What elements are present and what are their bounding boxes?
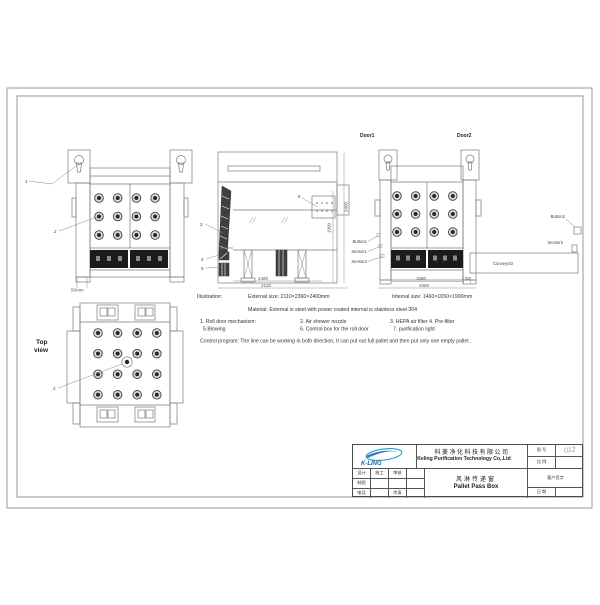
drawing-canvas: 50mm 1 2 6 [0, 0, 600, 600]
company-cell: 科菱净化科技有限公司 Keling Purification Technolog… [417, 445, 528, 469]
front-view-left: 50mm 1 2 [25, 150, 192, 293]
logo-cell: K-LING [353, 445, 417, 469]
note-material: Material: External is steel with power c… [248, 307, 417, 313]
callout-2-mid: 2 [200, 222, 203, 227]
door1-label: Door1 [360, 133, 375, 139]
sensor2-right-label: Sensor2 [547, 240, 563, 245]
construction-label: 施工 [371, 469, 389, 479]
note-item-7: 7. purification light [393, 327, 435, 333]
drawing-no-text: 012 [563, 446, 576, 455]
drawing-no-value: 012 [556, 445, 583, 457]
sensor1-label: Sensor1 [351, 249, 367, 254]
nozzle-grid-left [95, 194, 160, 240]
button1-label: Button1 [353, 239, 368, 244]
top-view-title-line1: Top [36, 339, 47, 346]
note-item-2: 2. Air shower nozzle [300, 319, 347, 325]
callout-2-left: 2 [54, 229, 57, 234]
dim-1900: 1900 [327, 222, 332, 233]
note-internal-size: Internal size: 1460×1650×1900mm [392, 294, 472, 300]
empty-cell-r2c2 [371, 479, 389, 489]
empty-cell-r1c4 [407, 469, 425, 479]
dim-2400: 2400 [344, 201, 349, 212]
top-view: Top view 2 [34, 303, 183, 427]
door2-label: Door2 [457, 133, 472, 139]
front-view-right: Door1 Door2 Button1 Sensor1 Sensor2 [351, 133, 581, 288]
empty-cell-r3c2 [371, 489, 389, 498]
drawing-sheet: 50mm 1 2 6 [0, 0, 600, 600]
empty-cell-r3c4 [407, 489, 425, 498]
drafting-label: 制图 [353, 479, 371, 489]
drawing-no-label: 图 号 [528, 445, 556, 457]
note-item-5: 5.Blowing [203, 327, 226, 333]
callout-4: 4 [201, 257, 204, 262]
customer-sign-label: 客户签字 [528, 469, 583, 488]
top-view-title-line2: view [34, 347, 49, 354]
design-label: 设计 [353, 469, 371, 479]
note-item-3-4: 3. HEPA air filter 4. Pre-filter [390, 319, 455, 325]
note-item-6: 6. Control box for the roll door [300, 327, 369, 333]
keling-logo: K-LING [354, 446, 416, 468]
conveyor2-label: Conveyor2 [493, 261, 514, 266]
callout-6: 6 [298, 194, 301, 199]
dim-1480: 1480 [258, 276, 269, 281]
notes-block: Illustration: External size: 2110×2360×2… [197, 294, 472, 345]
empty-cell-r2c4 [407, 479, 425, 489]
dim-1860: 1860 [416, 276, 427, 281]
callout-5: 5 [201, 266, 204, 271]
date-value [556, 488, 583, 497]
note-control-program: Control program: The line can be working… [200, 339, 472, 345]
dim-50: 50 [465, 276, 471, 281]
note-external-size: External size: 2110×2360×2400mm [248, 294, 330, 300]
logo-text: K-LING [361, 461, 382, 467]
callout-2-top: 2 [53, 386, 56, 391]
button2-label: Button2 [551, 214, 566, 219]
product-title-cell: 风淋传递窗 Pallet Pass Box [425, 469, 528, 498]
nozzle-grid-right [393, 192, 457, 237]
dim-50mm: 50mm [71, 288, 84, 293]
note-illustration: Illustration: [197, 294, 222, 300]
scale-label: 比 例 [528, 457, 556, 469]
note-item-1: 1. Roll door mechanism: [200, 319, 256, 325]
empty-cell-r2c3 [389, 479, 407, 489]
title-block: K-LING 科菱净化科技有限公司 Keling Purification Te… [352, 444, 583, 497]
dim-2360: 2360 [419, 283, 430, 288]
side-view: 6 2 4 5 1480 2110 2400 1900 [200, 152, 349, 288]
fax-label: 传真 [389, 489, 407, 498]
sensor2-label: Sensor2 [351, 259, 367, 264]
date-label: 日 期 [528, 488, 556, 497]
product-name-en: Pallet Pass Box [454, 484, 499, 490]
scale-value [556, 457, 583, 469]
dim-2110: 2110 [261, 283, 271, 288]
product-name-cn: 风淋传递窗 [456, 477, 496, 483]
callout-1: 1 [25, 179, 28, 184]
phone-label: 电话 [353, 489, 371, 498]
review-label: 审核 [389, 469, 407, 479]
company-name-en: Keling Purification Technology Co,.Ltd [417, 457, 511, 462]
